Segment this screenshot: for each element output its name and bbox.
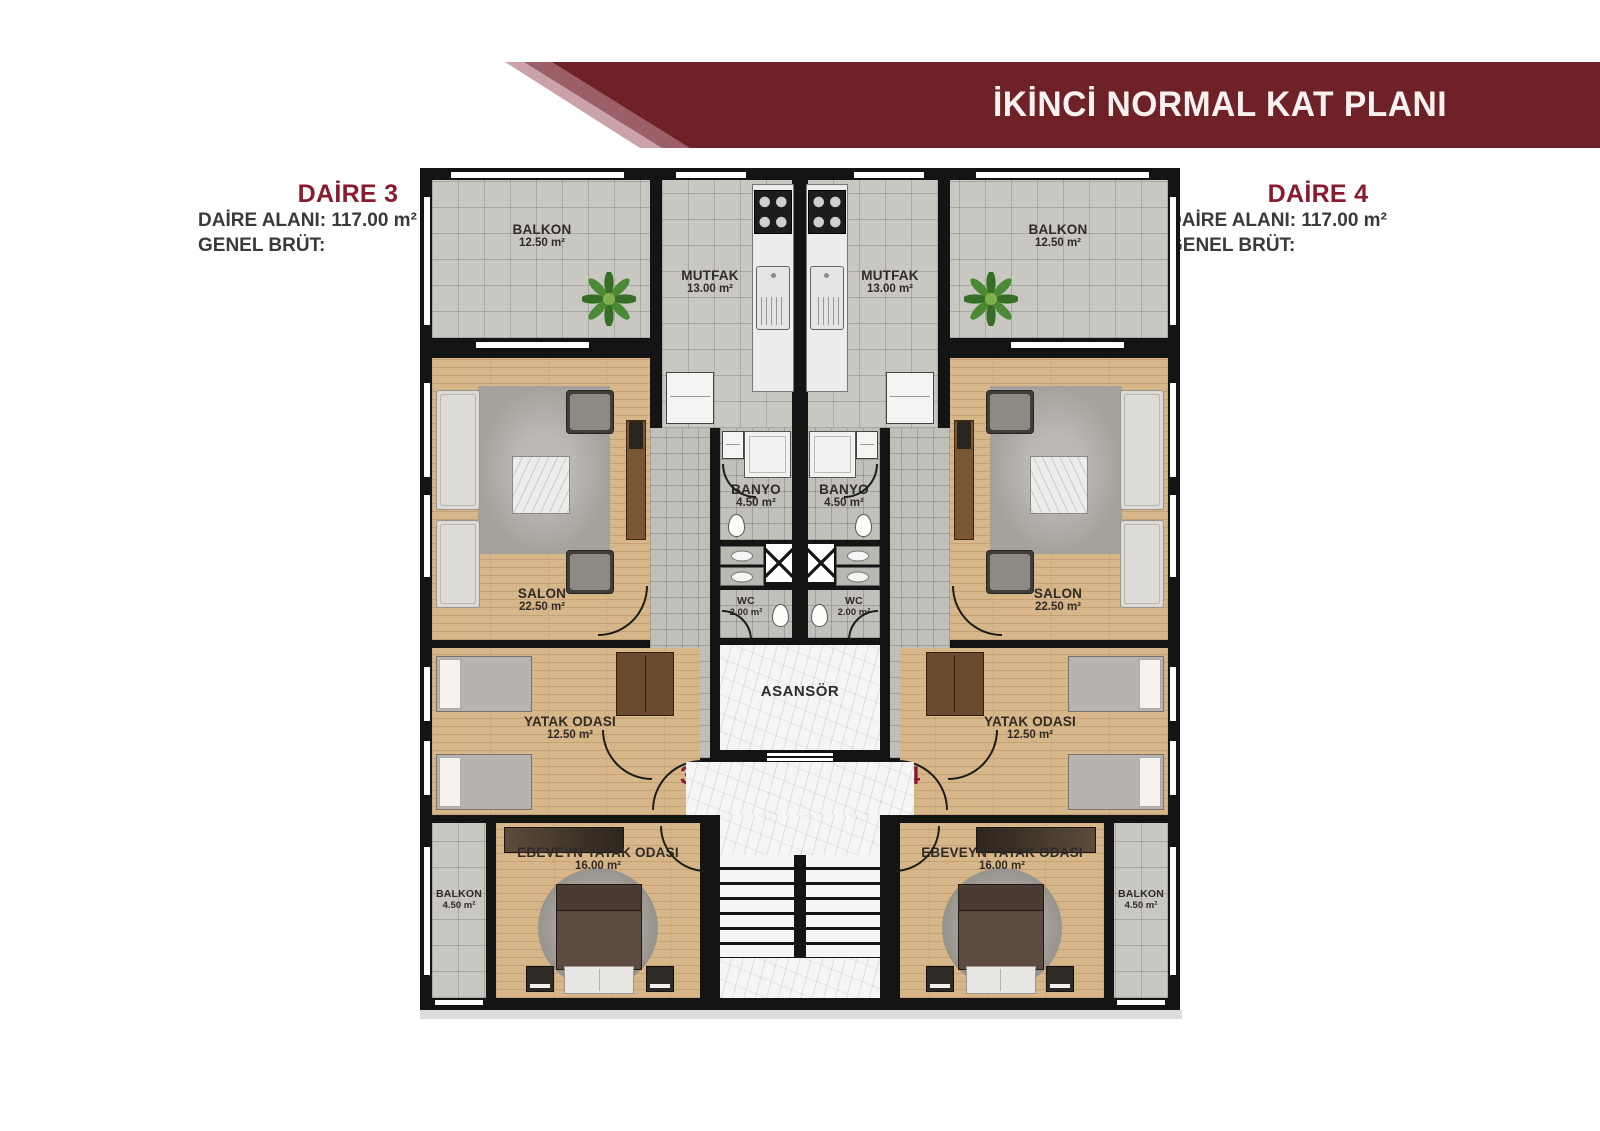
- double-bed-mattress: [564, 966, 634, 994]
- mutfak-label: MUTFAK 13.00 m²: [842, 268, 938, 296]
- window: [975, 171, 1150, 179]
- wardrobe: [926, 652, 984, 716]
- mutfak-label: MUTFAK 13.00 m²: [662, 268, 758, 296]
- balkon-top-label: BALKON 12.50 m²: [968, 222, 1148, 250]
- toilet-icon: [728, 514, 745, 537]
- toilet-icon: [772, 604, 789, 627]
- sofa: [436, 390, 480, 510]
- armchair: [566, 390, 614, 434]
- window: [423, 846, 431, 976]
- stairs-upper-landing: [720, 815, 880, 855]
- page-title: İKİNCİ NORMAL KAT PLANI: [990, 62, 1451, 148]
- stairs-flight-left: [720, 855, 794, 958]
- plant-icon: [582, 272, 636, 326]
- double-bed-headboard: [958, 884, 1044, 912]
- tv-unit: [626, 420, 646, 540]
- double-bed-headboard: [556, 884, 642, 912]
- window: [450, 171, 625, 179]
- window: [1169, 382, 1177, 478]
- elevator-door: [766, 752, 834, 762]
- washer-icon: [856, 431, 878, 459]
- nightstand: [526, 966, 554, 992]
- balkon-side-label: BALKON 4.50 m²: [429, 889, 489, 912]
- window: [423, 196, 431, 326]
- coffee-table: [512, 456, 570, 514]
- asansor-label: ASANSÖR: [720, 683, 880, 700]
- window: [1169, 196, 1177, 326]
- window: [423, 382, 431, 478]
- washer-icon: [722, 431, 744, 459]
- vanity-sink: [836, 567, 880, 586]
- balkon-top-label: BALKON 12.50 m²: [452, 222, 632, 250]
- double-bed: [556, 910, 642, 970]
- window: [434, 999, 484, 1006]
- stove-icon: [754, 190, 792, 234]
- toilet-icon: [855, 514, 872, 537]
- room-mutfak: MUTFAK 13.00 m²: [808, 180, 938, 428]
- window: [1169, 494, 1177, 578]
- apartment-area: DAİRE ALANI: 117.00 m²: [1168, 208, 1468, 233]
- room-balkon-top: BALKON 12.50 m²: [432, 180, 650, 338]
- coffee-table: [1030, 456, 1088, 514]
- nightstand: [646, 966, 674, 992]
- floor-plan: BALKON 12.50 m²: [420, 168, 1180, 1010]
- vent-shaft: [806, 542, 836, 584]
- vent-shaft: [764, 542, 794, 584]
- single-bed: [1068, 656, 1164, 712]
- stairs-lower-landing: [720, 958, 880, 998]
- salon-label: SALON 22.50 m²: [978, 586, 1138, 614]
- plan-bottom-edge: [420, 1010, 1182, 1019]
- window: [423, 494, 431, 578]
- sofa: [1120, 390, 1164, 510]
- room-mutfak: MUTFAK 13.00 m²: [662, 180, 792, 428]
- apartment-info-daire4: DAİRE 4 DAİRE ALANI: 117.00 m² GENEL BRÜ…: [1168, 181, 1468, 258]
- room-balkon-side: BALKON 4.50 m²: [1114, 823, 1168, 998]
- window: [675, 171, 747, 179]
- wardrobe: [616, 652, 674, 716]
- window: [475, 341, 590, 349]
- window: [1116, 999, 1166, 1006]
- single-bed: [436, 656, 532, 712]
- window: [423, 740, 431, 796]
- fridge-icon: [666, 372, 714, 424]
- room-balkon-side: BALKON 4.50 m²: [432, 823, 486, 998]
- vanity-sink: [720, 567, 764, 586]
- double-bed-mattress: [966, 966, 1036, 994]
- window: [1010, 341, 1125, 349]
- nightstand: [1046, 966, 1074, 992]
- vanity-sink: [836, 546, 880, 565]
- elevator: ASANSÖR: [720, 645, 880, 750]
- vanity-sink: [720, 546, 764, 565]
- apartment-name: DAİRE 4: [1168, 181, 1468, 208]
- stairs-flight-right: [806, 855, 880, 958]
- tv-unit: [954, 420, 974, 540]
- room-balkon-top: BALKON 12.50 m²: [950, 180, 1168, 338]
- single-bed: [436, 754, 532, 810]
- window: [1169, 666, 1177, 722]
- title-banner: İKİNCİ NORMAL KAT PLANI: [0, 62, 1600, 148]
- plant-icon: [964, 272, 1018, 326]
- nightstand: [926, 966, 954, 992]
- toilet-icon: [811, 604, 828, 627]
- window: [1169, 740, 1177, 796]
- kitchen-sink-icon: [810, 266, 844, 330]
- window: [1169, 846, 1177, 976]
- apartment-gross: GENEL BRÜT:: [1168, 233, 1468, 258]
- window: [853, 171, 925, 179]
- armchair: [986, 390, 1034, 434]
- window: [423, 666, 431, 722]
- fridge-icon: [886, 372, 934, 424]
- balkon-side-label: BALKON 4.50 m²: [1111, 889, 1171, 912]
- double-bed: [958, 910, 1044, 970]
- stove-icon: [808, 190, 846, 234]
- kitchen-sink-icon: [756, 266, 790, 330]
- stair-landing: [686, 762, 914, 815]
- single-bed: [1068, 754, 1164, 810]
